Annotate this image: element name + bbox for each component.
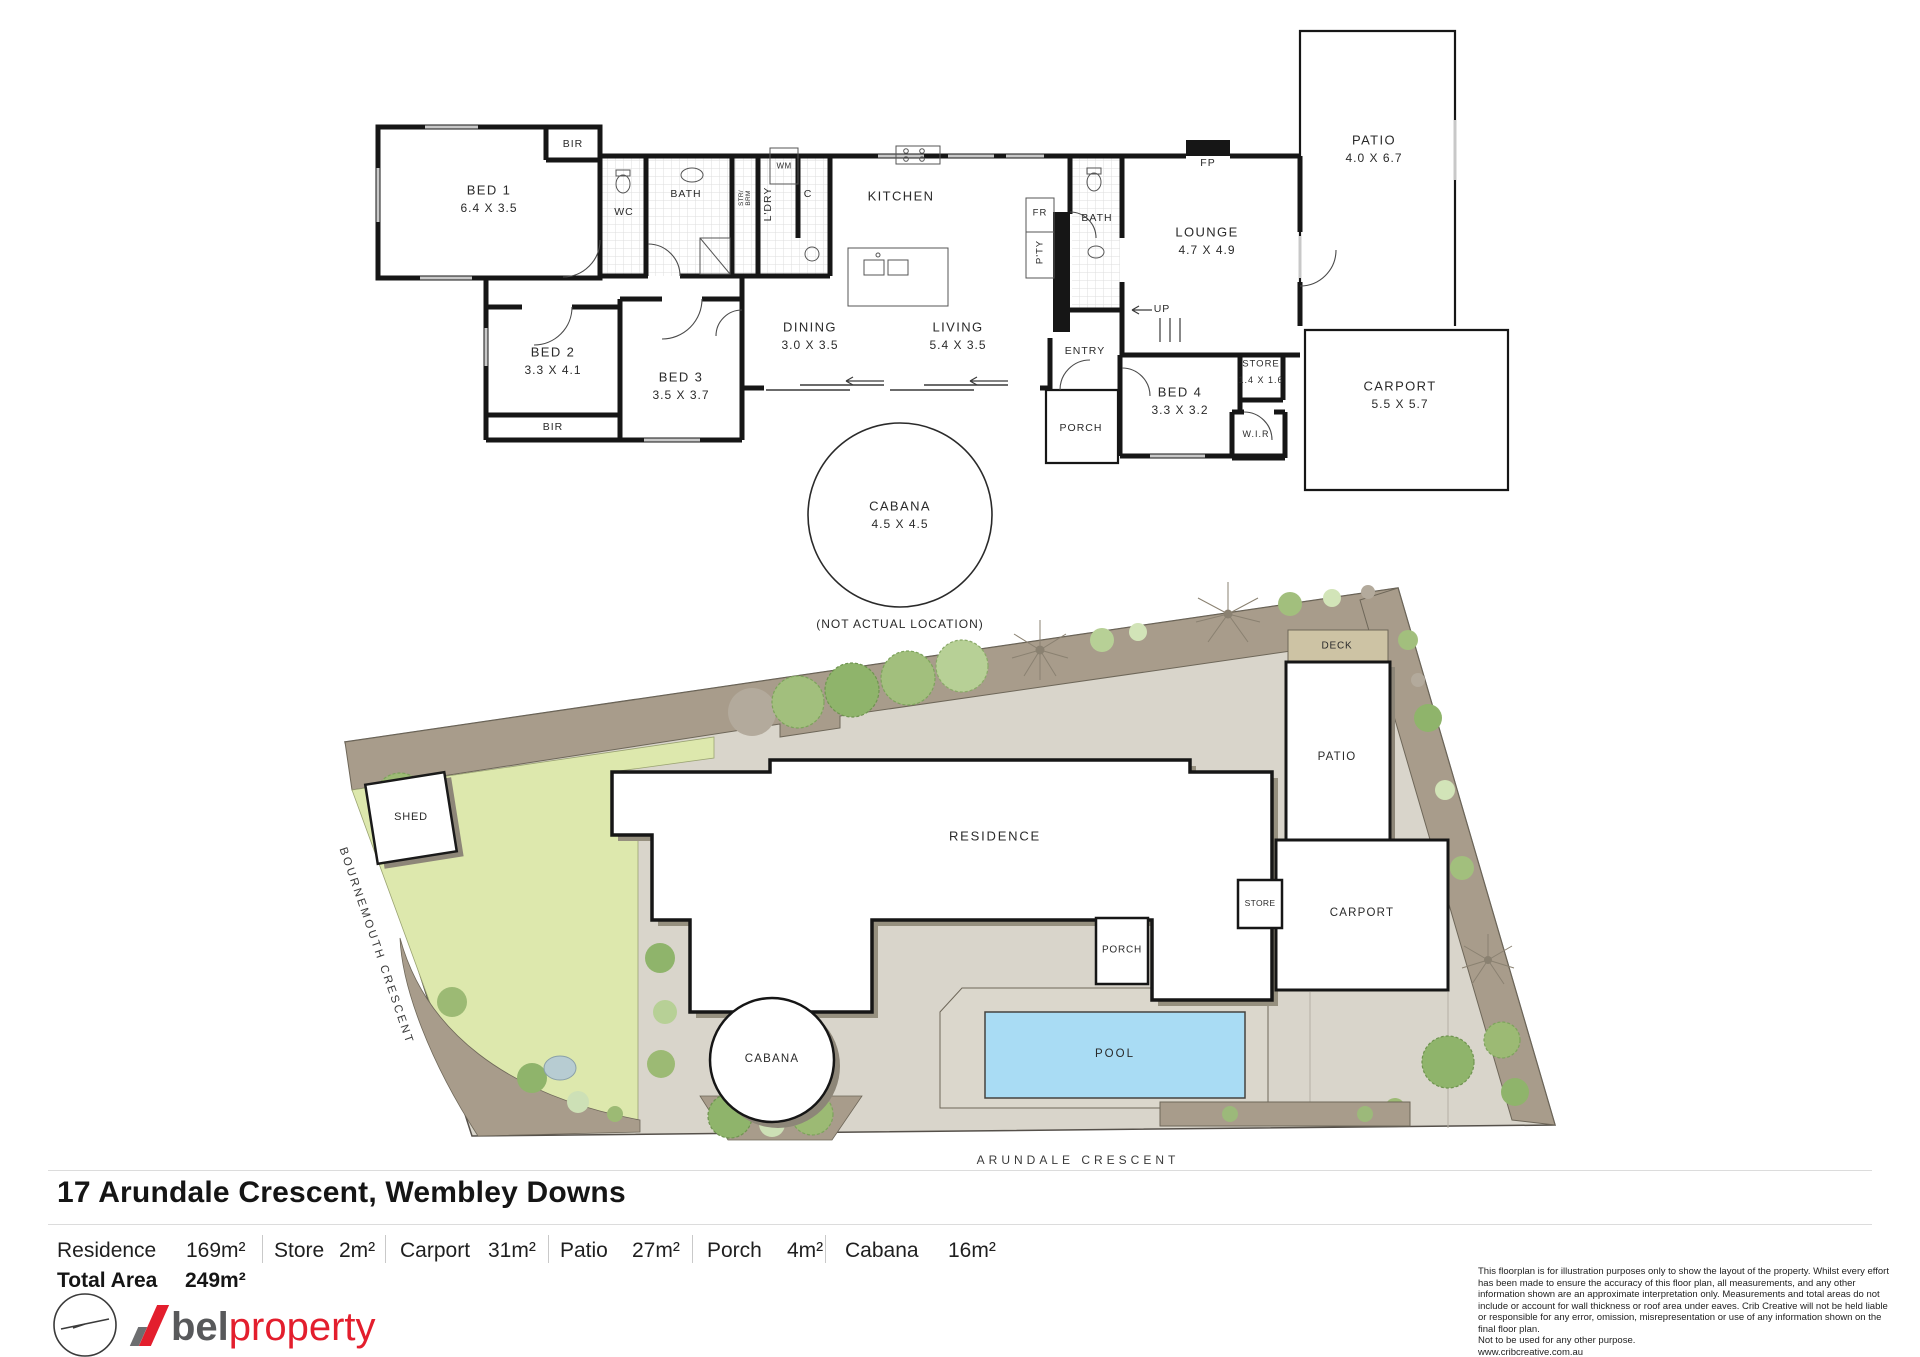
site-cabana-label: CABANA (745, 1053, 800, 1065)
street-arundale: ARUNDALE CRESCENT (977, 1153, 1180, 1167)
sliding-doors (766, 385, 1008, 390)
abel-property-logo: bel property (132, 1299, 376, 1347)
bath2-label: BATH (1081, 212, 1112, 224)
room-dining-dims: 3.0 X 3.5 (781, 338, 838, 352)
room-store: STORE (1242, 359, 1280, 370)
fp-label: FP (1200, 157, 1215, 169)
room-bed1-dims: 6.4 X 3.5 (460, 201, 517, 215)
room-carport-dims: 5.5 X 5.7 (1371, 397, 1428, 411)
area-value-residence: 169m² (186, 1239, 246, 1263)
abel-logo-a-icon (132, 1305, 168, 1347)
pond (544, 1056, 576, 1080)
page-title: 17 Arundale Crescent, Wembley Downs (57, 1176, 626, 1210)
plan-graphic (0, 0, 1920, 1357)
room-lounge: LOUNGE (1175, 225, 1238, 240)
room-living-dims: 5.4 X 3.5 (929, 338, 986, 352)
area-separator (262, 1235, 263, 1263)
room-bed4: BED 4 (1158, 385, 1203, 400)
site-shed-label: SHED (394, 811, 428, 823)
bath1-label: BATH (670, 188, 701, 200)
total-area-label: Total Area (57, 1269, 157, 1293)
area-separator (825, 1235, 826, 1263)
room-cabana-dims: 4.5 X 4.5 (871, 517, 928, 531)
logo-text-light: property (229, 1307, 376, 1347)
site-porch-label: PORCH (1102, 945, 1142, 956)
entry-label: ENTRY (1065, 345, 1105, 357)
site-residence-label: RESIDENCE (949, 829, 1041, 844)
site-carport-label: CARPORT (1330, 907, 1394, 919)
logo-text-bold: bel (171, 1307, 229, 1347)
area-separator (548, 1235, 549, 1263)
area-value-store: 2m² (339, 1239, 375, 1263)
divider-top (48, 1170, 1872, 1171)
ldry-label: L'DRY (762, 187, 774, 222)
room-patio-dims: 4.0 X 6.7 (1345, 151, 1402, 165)
room-bed3: BED 3 (659, 370, 704, 385)
room-kitchen: KITCHEN (868, 189, 935, 204)
not-actual-location-note: (NOT ACTUAL LOCATION) (816, 617, 983, 631)
fr-label: FR (1033, 208, 1048, 219)
wir-label: W.I.R (1243, 429, 1270, 439)
room-bed3-dims: 3.5 X 3.7 (652, 388, 709, 402)
cribcreative-clock-icon (52, 1292, 118, 1357)
area-separator (385, 1235, 386, 1263)
room-lounge-dims: 4.7 X 4.9 (1178, 243, 1235, 257)
cabana-fp-shape (808, 423, 992, 607)
area-label-carport: Carport (400, 1239, 470, 1263)
room-bed2-dims: 3.3 X 4.1 (524, 363, 581, 377)
room-dining: DINING (783, 320, 837, 335)
room-living: LIVING (932, 320, 983, 335)
room-patio: PATIO (1352, 133, 1396, 148)
room-bed2: BED 2 (531, 345, 576, 360)
slider-arrows (846, 377, 1008, 385)
divider-bottom (48, 1224, 1872, 1225)
c-label: C (804, 188, 813, 200)
site-pool-label: POOL (1095, 1048, 1135, 1060)
wm-label: WM (776, 162, 791, 171)
area-value-carport: 31m² (488, 1239, 536, 1263)
windows (378, 120, 1455, 456)
bir-label: BIR (563, 138, 584, 150)
porch-fp-label: PORCH (1060, 422, 1103, 434)
wc-label: WC (614, 206, 634, 218)
area-label-porch: Porch (707, 1239, 762, 1263)
room-bed4-dims: 3.3 X 3.2 (1151, 403, 1208, 417)
room-cabana: CABANA (869, 499, 931, 514)
room-bed1: BED 1 (467, 183, 512, 198)
strbrm-line2: BRM (745, 190, 752, 205)
area-value-patio: 27m² (632, 1239, 680, 1263)
up-label: UP (1154, 303, 1171, 315)
site-patio-label: PATIO (1318, 751, 1357, 763)
siteplan-graphic (345, 582, 1555, 1140)
total-area-value: 249m² (185, 1269, 246, 1293)
area-label-residence: Residence (57, 1239, 156, 1263)
fireplace-wall (1186, 140, 1230, 156)
solid-wall (1053, 212, 1070, 332)
area-label-patio: Patio (560, 1239, 608, 1263)
area-value-cabana: 16m² (948, 1239, 996, 1263)
pty-label: P'TY (1035, 240, 1046, 264)
area-value-porch: 4m² (787, 1239, 823, 1263)
area-label-store: Store (274, 1239, 324, 1263)
site-deck-label: DECK (1322, 641, 1353, 652)
strbrm-label: STR/ BRM (738, 190, 752, 206)
room-store-dims: 1.4 X 1.6 (1238, 375, 1283, 385)
bir2-label: BIR (543, 421, 564, 433)
area-separator (692, 1235, 693, 1263)
area-label-cabana: Cabana (845, 1239, 919, 1263)
floorplan-page: BED 1 6.4 X 3.5 BED 2 3.3 X 4.1 BED 3 3.… (0, 0, 1920, 1357)
disclaimer-text: This floorplan is for illustration purpo… (1478, 1266, 1898, 1357)
site-store-label: STORE (1245, 898, 1276, 908)
strbrm-line1: STR/ (738, 190, 745, 206)
room-carport: CARPORT (1363, 379, 1436, 394)
